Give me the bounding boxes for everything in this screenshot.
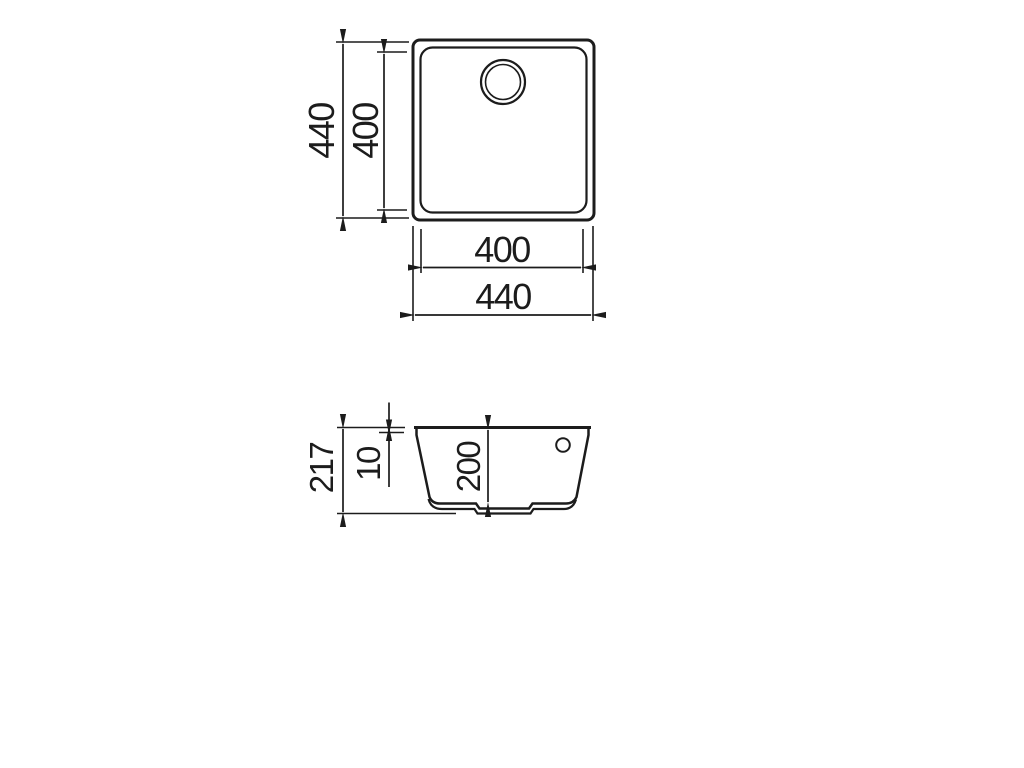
dim-outer-width-label: 440	[475, 276, 531, 317]
top-view: 440 400 400 440	[301, 40, 594, 321]
dim-inner-height-label: 400	[345, 103, 386, 159]
sink-bowl-inner-edge	[421, 48, 587, 213]
sink-technical-drawing: 440 400 400 440	[0, 0, 1024, 768]
dim-inner-height: 400	[345, 52, 407, 210]
dim-total-depth-label: 217	[303, 443, 340, 494]
section-view: 217 10 200	[303, 403, 591, 514]
section-bowl-profile	[417, 428, 589, 509]
section-bottom-outer	[429, 499, 577, 514]
sink-outer-edge	[413, 40, 594, 220]
dim-rim-thickness: 10	[350, 403, 404, 488]
dim-outer-height-label: 440	[301, 103, 342, 159]
dim-bowl-depth-label: 200	[450, 441, 487, 493]
drain-hole-inner-icon	[486, 65, 521, 100]
dim-rim-thickness-label: 10	[350, 446, 387, 481]
dim-bowl-depth: 200	[450, 430, 488, 502]
dim-inner-width: 400	[421, 229, 583, 273]
technical-drawing-page: 440 400 400 440	[0, 0, 1024, 768]
drain-hole-outer-icon	[481, 60, 525, 104]
overflow-hole-icon	[556, 438, 570, 452]
dim-inner-width-label: 400	[474, 229, 530, 270]
